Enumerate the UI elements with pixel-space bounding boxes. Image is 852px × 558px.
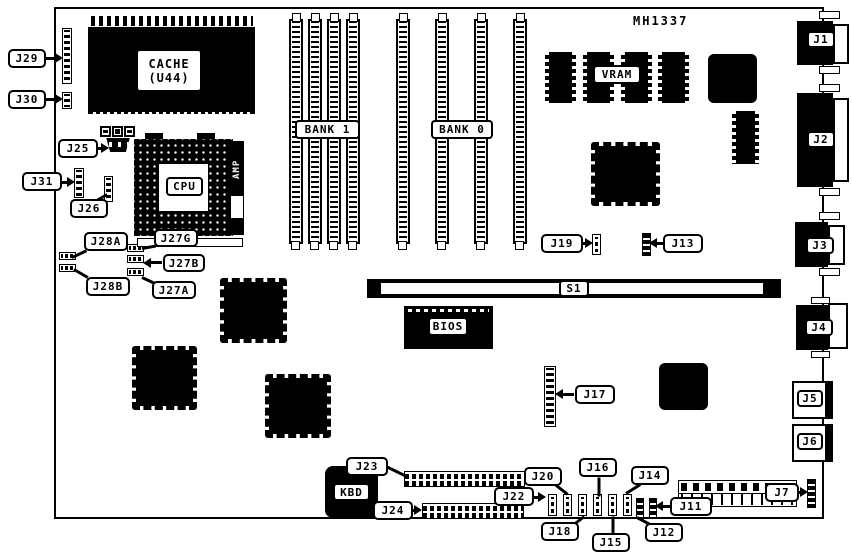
callout-j31-arrow <box>67 177 75 187</box>
cache-chip-pins-top <box>91 16 253 26</box>
qfp-chip-b <box>132 346 197 410</box>
chip-bottom-right <box>659 363 708 410</box>
callout-j11-arrow <box>655 501 663 511</box>
callout-j26: J26 <box>70 199 108 218</box>
j20-jumper <box>563 494 572 516</box>
callout-j20: J20 <box>524 467 562 486</box>
j1-mount-tab-top <box>819 11 840 19</box>
callout-j22: J22 <box>494 487 534 506</box>
callout-j24-arrow <box>414 505 422 515</box>
j25-switch-3 <box>124 126 135 137</box>
j7-jumper <box>807 479 816 508</box>
j6-label: J6 <box>797 433 823 450</box>
j2-mount-tab-top <box>819 84 840 92</box>
callout-j25: J25 <box>58 139 98 158</box>
vram-chip-1 <box>545 52 576 103</box>
callout-j18: J18 <box>541 522 579 541</box>
dip-chip-right <box>732 111 759 164</box>
callout-j31: J31 <box>22 172 62 191</box>
board-model-text: MH1337 <box>633 14 688 28</box>
callout-j7: J7 <box>765 483 799 502</box>
callout-j28b: J28B <box>86 277 130 296</box>
j2-port-shell <box>833 98 849 182</box>
j27a-jumper <box>127 268 144 276</box>
amp-lever-handle <box>231 196 243 218</box>
qfp-chip-top-right <box>708 54 757 103</box>
video-controller-chip <box>591 142 660 206</box>
j19-jumper <box>592 234 601 255</box>
j3-mount-tab-top <box>819 212 840 220</box>
callout-j11: J11 <box>670 497 712 516</box>
callout-j29-arrow <box>55 53 63 63</box>
amp-lever-base <box>231 218 243 234</box>
callout-j17-arrow <box>555 389 563 399</box>
j14-jumper <box>623 494 632 516</box>
j30-header <box>62 92 72 109</box>
callout-j17: J17 <box>575 385 615 404</box>
callout-j19: J19 <box>541 234 583 253</box>
j5-label: J5 <box>797 390 823 407</box>
cpu-label: CPU <box>166 177 203 196</box>
simm-slot-bank0-4 <box>513 19 527 244</box>
callout-j29: J29 <box>8 49 46 68</box>
callout-j27b-arrow <box>143 258 151 268</box>
j1-port-shell <box>833 24 849 64</box>
amp-lever-label: AMP <box>231 142 243 196</box>
callout-j12: J12 <box>645 523 683 542</box>
callout-j13-arrow <box>649 238 657 248</box>
kbd-label: KBD <box>333 483 370 501</box>
j22-jumper <box>548 494 557 516</box>
j16-jumper <box>593 494 602 516</box>
j25-switch-2 <box>112 126 123 137</box>
qfp-chip-c <box>265 374 331 438</box>
j29-header <box>62 28 72 84</box>
callout-j7-arrow <box>800 487 808 497</box>
bank1-label: BANK 1 <box>295 120 360 139</box>
callout-j27a: J27A <box>152 281 196 299</box>
simm-slot-bank0-1 <box>396 19 410 244</box>
s1-label: S1 <box>559 280 589 297</box>
j2-label: J2 <box>807 131 835 148</box>
callout-j30: J30 <box>8 90 46 109</box>
callout-j23: J23 <box>346 457 388 476</box>
j4-label: J4 <box>805 319 833 336</box>
qfp-chip-a <box>220 278 287 343</box>
vram-chip-4 <box>658 52 689 103</box>
callout-j19-arrow <box>585 238 593 248</box>
callout-j27b: J27B <box>163 254 205 272</box>
callout-j15: J15 <box>592 533 630 552</box>
cpu-zif-lever: AMP <box>230 141 244 235</box>
j27b-jumper <box>127 255 144 263</box>
j2-mount-tab-bottom <box>819 188 840 196</box>
callout-j22-arrow <box>538 492 546 502</box>
callout-j30-arrow <box>55 94 63 104</box>
j23-header <box>404 471 525 487</box>
cache-chip-pins-bottom <box>93 112 250 119</box>
vram-label: VRAM <box>593 65 641 84</box>
j1-label: J1 <box>807 31 835 48</box>
j26-header <box>104 176 113 202</box>
j4-mount-tab-bottom <box>811 351 830 358</box>
cache-label-line2: (U44) <box>148 72 189 84</box>
callout-j16-tail <box>598 478 601 497</box>
j15-jumper <box>608 494 617 516</box>
j3-label: J3 <box>806 237 834 254</box>
callout-j16: J16 <box>579 458 617 477</box>
callout-j24: J24 <box>373 501 413 520</box>
bank0-label: BANK 0 <box>431 120 493 139</box>
j3-mount-tab-bottom <box>819 268 840 276</box>
bios-label: BIOS <box>428 317 468 336</box>
bios-chip-socket-line <box>408 309 489 312</box>
callout-j14: J14 <box>631 466 669 485</box>
callout-j25-arrow <box>101 143 109 153</box>
callout-j28a: J28A <box>84 232 128 251</box>
callout-j13: J13 <box>663 234 703 253</box>
j31-header <box>74 168 84 198</box>
cache-label: CACHE (U44) <box>136 49 202 92</box>
cache-label-line1: CACHE <box>148 58 189 70</box>
j1-mount-tab-bottom <box>819 66 840 74</box>
j18-jumper <box>578 494 587 516</box>
motherboard-diagram: MH1337 CACHE (U44) J29 J30 J25 J31 J26 J… <box>0 0 852 558</box>
j25-switch-1 <box>100 126 111 137</box>
callout-j27g: J27G <box>154 229 198 247</box>
